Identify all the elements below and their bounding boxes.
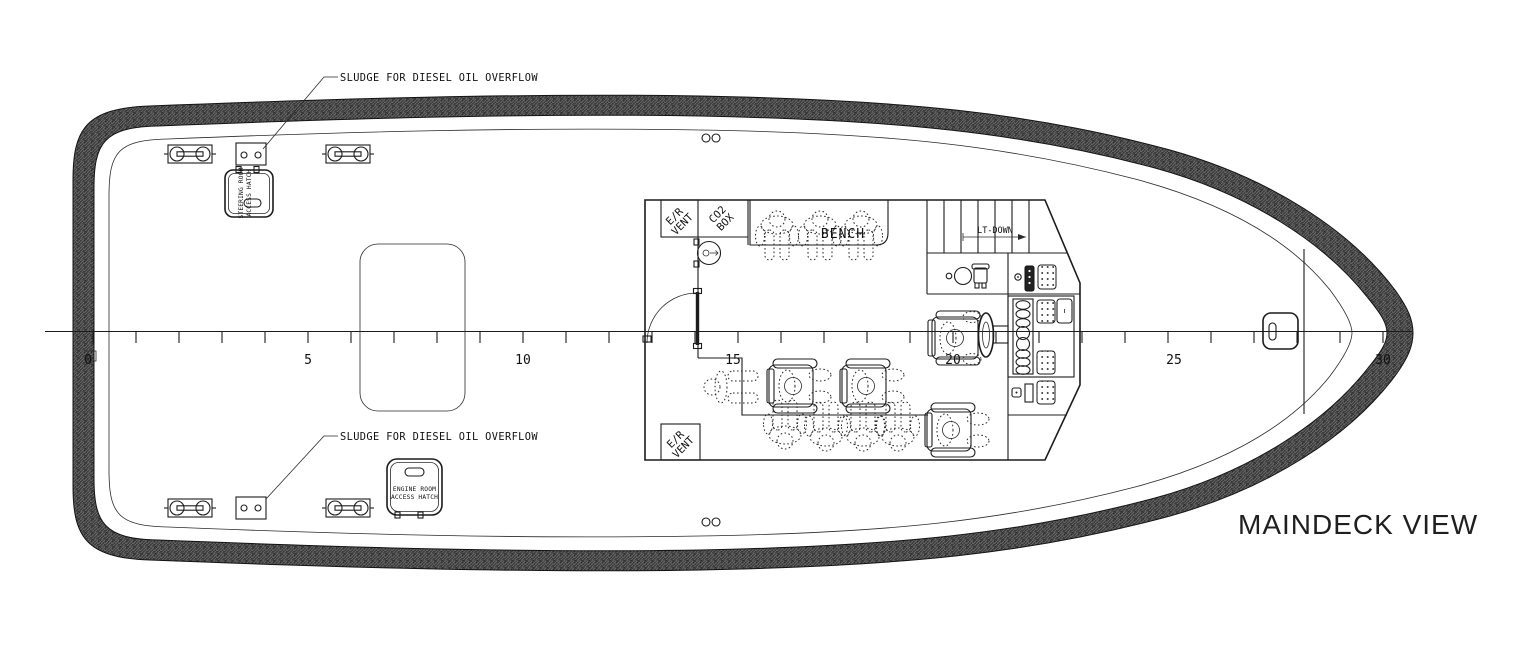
engine-hatch-label-1: ENGINE ROOM: [393, 486, 436, 493]
engine-hatch-label-2: ACCESS HATCH: [391, 494, 438, 501]
hull-band-inner-edge: [94, 115, 1387, 551]
bench-label: BENCH: [821, 227, 865, 242]
steering-hatch-label-2: ACCESS HATCH: [246, 169, 253, 216]
sludge-top-label: SLUDGE FOR DIESEL OIL OVERFLOW: [340, 72, 538, 84]
ruler-label-20: 20: [945, 353, 961, 368]
ruler-label-5: 5: [304, 353, 312, 368]
ruler-label-25: 25: [1166, 353, 1182, 368]
keypad: [1038, 265, 1056, 289]
keypad: [1037, 351, 1055, 374]
ruler-label-15: 15: [725, 353, 741, 368]
switch-panel: [1025, 266, 1034, 291]
ruler-label-30: 30: [1375, 353, 1391, 368]
maindeck-drawing: 0 5 10 15 20 25 30: [0, 0, 1532, 670]
steering-hatch-label-1: STEERING ROOM: [238, 167, 245, 218]
sludge-bottom-label: SLUDGE FOR DIESEL OIL OVERFLOW: [340, 431, 538, 443]
hull: [73, 95, 1413, 571]
keypad: [1037, 300, 1055, 323]
stairs-label: LT-DOWN: [977, 226, 1013, 236]
drawing-title: MAINDECK VIEW: [1238, 509, 1478, 540]
ruler-label-0: 0: [84, 353, 92, 368]
keypad: [1037, 381, 1055, 404]
ruler-label-10: 10: [515, 353, 531, 368]
